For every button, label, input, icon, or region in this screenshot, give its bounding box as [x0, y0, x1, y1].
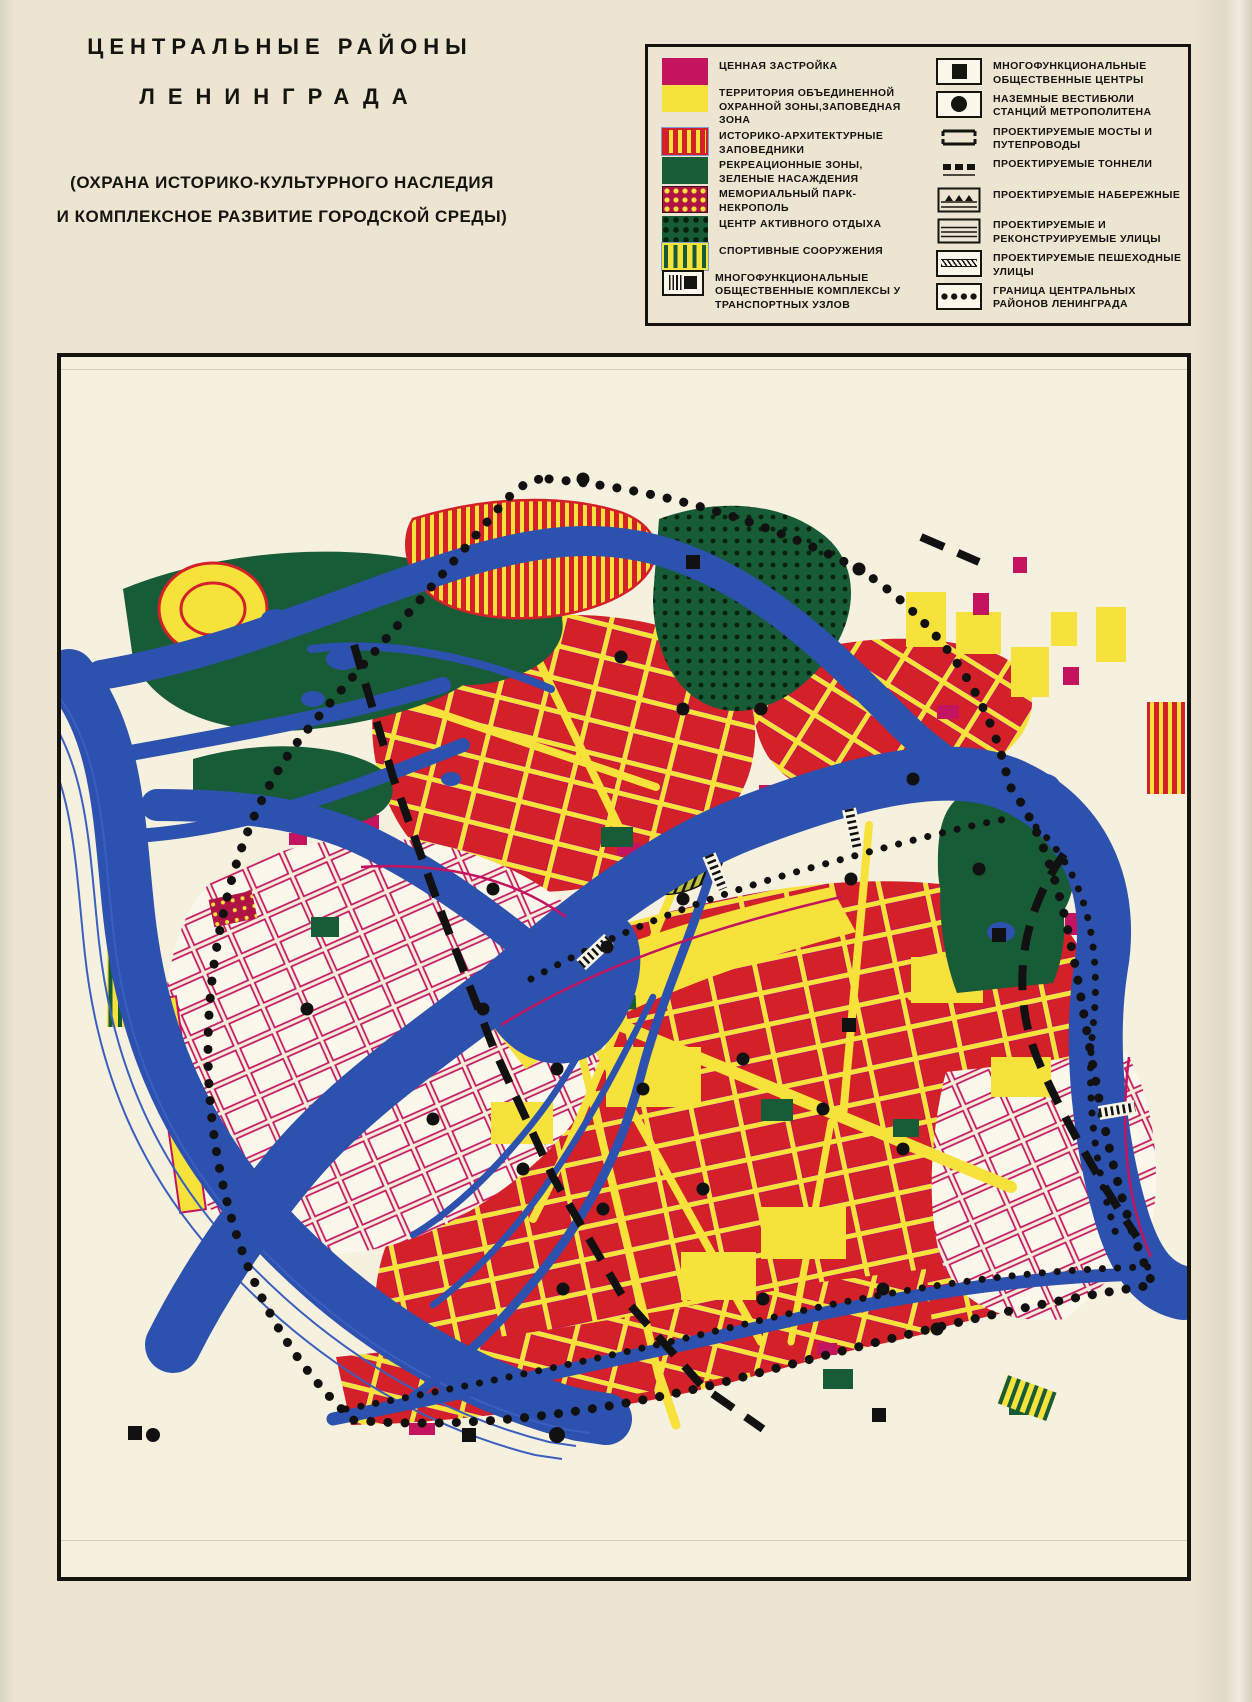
legend-column-left: ЦЕННАЯ ЗАСТРОЙКАТЕРРИТОРИЯ ОБЪЕДИНЕННОЙ …: [662, 47, 918, 323]
embankment-icon: [937, 187, 981, 213]
subtitle-line-1: (ОХРАНА ИСТОРИКО-КУЛЬТУРНОГО НАСЛЕДИЯ: [36, 166, 528, 200]
legend-item-sports-facilities: СПОРТИВНЫЕ СООРУЖЕНИЯ: [662, 243, 918, 270]
legend-swatch-protected-zone: [662, 85, 708, 112]
dotted-line-icon: [940, 292, 978, 301]
legend-item-pedestrian-streets: ПРОЕКТИРУЕМЫЕ ПЕШЕХОДНЫЕ УЛИЦЫ: [936, 250, 1186, 279]
bridge-icon: [937, 124, 981, 150]
legend-label-protected-zone: ТЕРРИТОРИЯ ОБЪЕДИНЕННОЙ ОХРАННОЙ ЗОНЫ,ЗА…: [719, 85, 918, 128]
legend-label-planned-tunnels: ПРОЕКТИРУЕМЫЕ ТОННЕЛИ: [993, 156, 1152, 172]
legend-label-sports-facilities: СПОРТИВНЫЕ СООРУЖЕНИЯ: [719, 243, 883, 259]
legend-label-valuable-buildings: ЦЕННАЯ ЗАСТРОЙКА: [719, 58, 838, 74]
legend-swatch-valuable-buildings: [662, 58, 708, 85]
scanned-page: ЦЕНТРАЛЬНЫЕ РАЙОНЫ ЛЕНИНГРАДА (ОХРАНА ИС…: [0, 0, 1252, 1702]
legend-label-public-centers: МНОГОФУНКЦИОНАЛЬНЫЕ ОБЩЕСТВЕННЫЕ ЦЕНТРЫ: [993, 58, 1186, 87]
legend-swatch-metro-vestibules: [936, 91, 982, 118]
legend-swatch-planned-embankments: [936, 187, 982, 214]
streets-icon: [937, 218, 981, 244]
legend-item-planned-streets: ПРОЕКТИРУЕМЫЕ И РЕКОНСТРУИРУЕМЫЕ УЛИЦЫ: [936, 217, 1186, 246]
legend-swatch-historic-architectural-reserves: [662, 128, 708, 155]
legend-swatch-transport-hub-complexes: [662, 270, 704, 296]
legend-item-planned-tunnels: ПРОЕКТИРУЕМЫЕ ТОННЕЛИ: [936, 156, 1186, 183]
legend-swatch-planned-tunnels: [936, 156, 982, 183]
legend-label-active-recreation-center: ЦЕНТР АКТИВНОГО ОТДЫХА: [719, 216, 882, 232]
map-legend: ЦЕННАЯ ЗАСТРОЙКАТЕРРИТОРИЯ ОБЪЕДИНЕННОЙ …: [645, 44, 1191, 326]
hatched-band-icon: [941, 259, 977, 267]
legend-label-pedestrian-streets: ПРОЕКТИРУЕМЫЕ ПЕШЕХОДНЫЕ УЛИЦЫ: [993, 250, 1186, 279]
black-square-icon: [952, 64, 967, 79]
page-subtitle: (ОХРАНА ИСТОРИКО-КУЛЬТУРНОГО НАСЛЕДИЯ И …: [36, 166, 528, 234]
legend-item-transport-hub-complexes: МНОГОФУНКЦИОНАЛЬНЫЕ ОБЩЕСТВЕННЫЕ КОМПЛЕК…: [662, 270, 918, 313]
legend-label-transport-hub-complexes: МНОГОФУНКЦИОНАЛЬНЫЕ ОБЩЕСТВЕННЫЕ КОМПЛЕК…: [715, 270, 918, 313]
legend-item-planned-embankments: ПРОЕКТИРУЕМЫЕ НАБЕРЕЖНЫЕ: [936, 187, 1186, 214]
legend-swatch-planned-streets: [936, 217, 982, 244]
legend-item-memorial-park-necropolis: МЕМОРИАЛЬНЫЙ ПАРК-НЕКРОПОЛЬ: [662, 186, 918, 215]
legend-item-planned-bridges: ПРОЕКТИРУЕМЫЕ МОСТЫ И ПУТЕПРОВОДЫ: [936, 124, 1186, 153]
legend-item-active-recreation-center: ЦЕНТР АКТИВНОГО ОТДЫХА: [662, 216, 918, 243]
legend-item-valuable-buildings: ЦЕННАЯ ЗАСТРОЙКА: [662, 58, 918, 85]
legend-swatch-central-districts-boundary: [936, 283, 982, 310]
legend-swatch-recreation-zones: [662, 157, 708, 184]
title-line-2: ЛЕНИНГРАДА: [68, 84, 492, 110]
legend-item-public-centers: МНОГОФУНКЦИОНАЛЬНЫЕ ОБЩЕСТВЕННЫЕ ЦЕНТРЫ: [936, 58, 1186, 87]
legend-label-metro-vestibules: НАЗЕМНЫЕ ВЕСТИБЮЛИ СТАНЦИЙ МЕТРОПОЛИТЕНА: [993, 91, 1186, 120]
legend-label-historic-architectural-reserves: ИСТОРИКО-АРХИТЕКТУРНЫЕ ЗАПОВЕДНИКИ: [719, 128, 918, 157]
map-frame: [57, 353, 1191, 1581]
legend-item-protected-zone: ТЕРРИТОРИЯ ОБЪЕДИНЕННОЙ ОХРАННОЙ ЗОНЫ,ЗА…: [662, 85, 918, 128]
reserve-patch-east: [1147, 702, 1185, 794]
hatch-block-icon: [669, 275, 682, 290]
legend-label-central-districts-boundary: ГРАНИЦА ЦЕНТРАЛЬНЫХ РАЙОНОВ ЛЕНИНГРАДА: [993, 283, 1186, 312]
city-map: [61, 357, 1187, 1577]
legend-swatch-active-recreation-center: [662, 216, 708, 243]
black-block-icon: [684, 276, 697, 289]
legend-item-metro-vestibules: НАЗЕМНЫЕ ВЕСТИБЮЛИ СТАНЦИЙ МЕТРОПОЛИТЕНА: [936, 91, 1186, 120]
legend-label-planned-streets: ПРОЕКТИРУЕМЫЕ И РЕКОНСТРУИРУЕМЫЕ УЛИЦЫ: [993, 217, 1186, 246]
legend-column-right: МНОГОФУНКЦИОНАЛЬНЫЕ ОБЩЕСТВЕННЫЕ ЦЕНТРЫН…: [936, 47, 1186, 323]
legend-label-memorial-park-necropolis: МЕМОРИАЛЬНЫЙ ПАРК-НЕКРОПОЛЬ: [719, 186, 918, 215]
legend-swatch-memorial-park-necropolis: [662, 186, 708, 213]
legend-label-recreation-zones: РЕКРЕАЦИОННЫЕ ЗОНЫ, ЗЕЛЕНЫЕ НАСАЖДЕНИЯ: [719, 157, 918, 186]
legend-label-planned-bridges: ПРОЕКТИРУЕМЫЕ МОСТЫ И ПУТЕПРОВОДЫ: [993, 124, 1186, 153]
tunnel-icon: [937, 157, 981, 183]
legend-item-historic-architectural-reserves: ИСТОРИКО-АРХИТЕКТУРНЫЕ ЗАПОВЕДНИКИ: [662, 128, 918, 157]
page-title: ЦЕНТРАЛЬНЫЕ РАЙОНЫ ЛЕНИНГРАДА: [68, 34, 492, 110]
legend-label-planned-embankments: ПРОЕКТИРУЕМЫЕ НАБЕРЕЖНЫЕ: [993, 187, 1180, 203]
title-line-1: ЦЕНТРАЛЬНЫЕ РАЙОНЫ: [68, 34, 492, 60]
legend-item-central-districts-boundary: ГРАНИЦА ЦЕНТРАЛЬНЫХ РАЙОНОВ ЛЕНИНГРАДА: [936, 283, 1186, 312]
legend-swatch-public-centers: [936, 58, 982, 85]
legend-swatch-planned-bridges: [936, 124, 982, 151]
black-circle-icon: [951, 96, 967, 112]
legend-item-recreation-zones: РЕКРЕАЦИОННЫЕ ЗОНЫ, ЗЕЛЕНЫЕ НАСАЖДЕНИЯ: [662, 157, 918, 186]
legend-swatch-pedestrian-streets: [936, 250, 982, 277]
subtitle-line-2: И КОМПЛЕКСНОЕ РАЗВИТИЕ ГОРОДСКОЙ СРЕДЫ): [36, 200, 528, 234]
legend-swatch-sports-facilities: [662, 243, 708, 270]
